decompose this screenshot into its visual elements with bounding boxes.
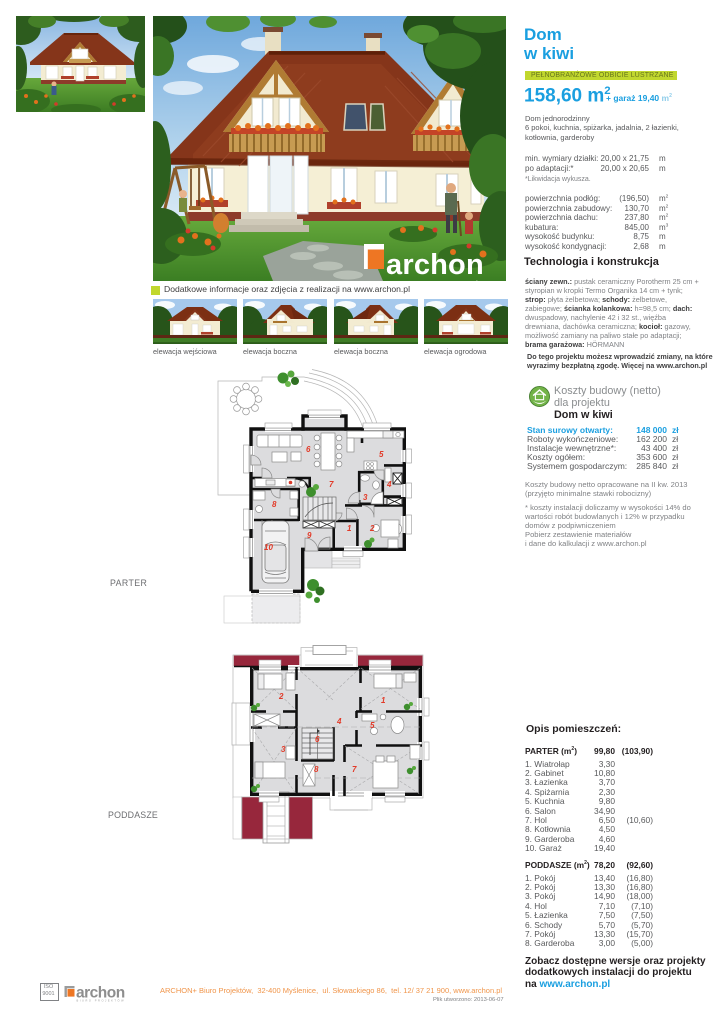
svg-text:3: 3	[363, 493, 368, 502]
svg-text:BIURO PROJEKTÓW: BIURO PROJEKTÓW	[367, 280, 494, 281]
svg-text:8: 8	[314, 765, 319, 774]
svg-text:7: 7	[352, 765, 357, 774]
svg-text:6: 6	[306, 445, 311, 454]
svg-text:3: 3	[281, 745, 286, 754]
svg-text:4: 4	[386, 480, 392, 489]
svg-text:6: 6	[315, 735, 320, 744]
svg-text:10: 10	[264, 543, 273, 552]
svg-text:9: 9	[307, 531, 312, 540]
svg-text:2: 2	[369, 524, 375, 533]
svg-text:8: 8	[272, 500, 277, 509]
svg-text:archon: archon	[386, 249, 484, 281]
svg-text:5: 5	[379, 450, 384, 459]
svg-text:1: 1	[347, 524, 352, 533]
svg-text:4: 4	[336, 717, 342, 726]
svg-text:5: 5	[370, 721, 375, 730]
svg-text:1: 1	[381, 696, 386, 705]
svg-text:7: 7	[329, 480, 334, 489]
svg-text:2: 2	[278, 692, 284, 701]
